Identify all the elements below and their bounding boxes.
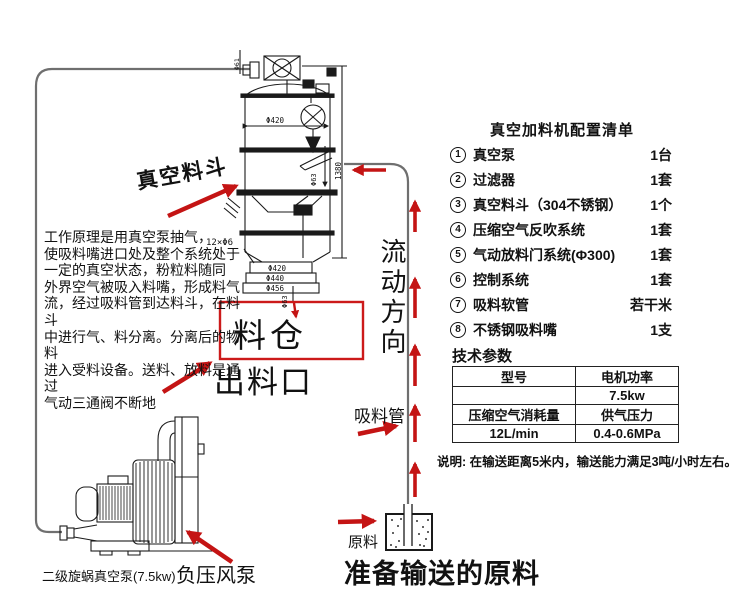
item-number-badge: 7 [450, 297, 466, 313]
item-label: 气动放料门系统(Φ300) [473, 245, 650, 265]
config-list-item: 5 气动放料门系统(Φ300) 1套 [450, 242, 672, 267]
arrow-to-suction-pipe [358, 426, 396, 434]
principle-line: 流，经过吸料管到达料斗，在料斗 [44, 295, 240, 328]
item-number-badge: 3 [450, 197, 466, 213]
config-list-title: 真空加料机配置清单 [452, 119, 672, 140]
config-list-item: 7 吸料软管 若干米 [450, 292, 672, 317]
dim-flange-456: Φ456 [266, 284, 284, 293]
config-list-item: 6 控制系统 1套 [450, 267, 672, 292]
dim-flange-420: Φ420 [268, 264, 286, 273]
principle-line: 中进行气、料分离。分离后的物料 [44, 329, 240, 362]
table-row: 12L/min 0.4-0.6MPa [453, 425, 679, 443]
item-quantity: 1套 [650, 270, 672, 290]
item-quantity: 若干米 [630, 295, 672, 315]
item-label: 真空料斗（304不锈钢） [473, 195, 650, 215]
arrow-to-pump [188, 532, 232, 562]
item-number-badge: 2 [450, 172, 466, 188]
dim-body-diameter: Φ420 [266, 116, 284, 125]
outlet-label: 出料口 [214, 357, 313, 402]
item-label: 吸料软管 [473, 295, 630, 315]
dim-spout-diameter: Φ63 [281, 295, 289, 308]
item-quantity: 1台 [650, 145, 672, 165]
item-number-badge: 1 [450, 147, 466, 163]
principle-line: 一定的真空状态，粉粒料随同 [44, 262, 240, 279]
principle-line: 进入受料设备。送料、放料是通过 [44, 362, 240, 395]
config-list-item: 4 压缩空气反吹系统 1套 [450, 217, 672, 242]
principle-line: 使吸料嘴进口处及整个系统处于 [44, 246, 240, 263]
table-cell: 电机功率 [576, 367, 679, 387]
config-list-item: 8 不锈钢吸料嘴 1支 [450, 317, 672, 342]
negative-pressure-pump-label: 负压风泵 [176, 559, 256, 588]
item-quantity: 1支 [650, 320, 672, 340]
table-cell: 供气压力 [576, 405, 679, 425]
dim-top-port: Φ61 [233, 58, 241, 70]
tech-params-table: 型号 电机功率 7.5kw 压缩空气消耗量 供气压力 12L/min 0.4-0… [452, 366, 679, 443]
table-cell: 0.4-0.6MPa [576, 425, 679, 443]
config-list-item: 2 过滤器 1套 [450, 167, 672, 192]
item-quantity: 1个 [650, 195, 672, 215]
item-quantity: 1套 [650, 220, 672, 240]
item-number-badge: 4 [450, 222, 466, 238]
table-row: 7.5kw [453, 387, 679, 405]
working-principle-text: 工作原理是用真空泵抽气， 使吸料嘴进口处及整个系统处于 一定的真空状态，粉粒料随… [44, 229, 240, 412]
table-cell: 7.5kw [576, 387, 679, 405]
dim-total-height: 1380 [334, 162, 343, 180]
diagram-canvas: 真空料斗 工作原理是用真空泵抽气， 使吸料嘴进口处及整个系统处于 一定的真空状态… [0, 0, 746, 594]
dim-inlet-diameter: Φ63 [310, 173, 318, 186]
item-label: 控制系统 [473, 270, 650, 290]
dim-bolt-circle: 12×Φ6 [206, 238, 233, 248]
config-list-item: 3 真空料斗（304不锈钢） 1个 [450, 192, 672, 217]
item-quantity: 1套 [650, 245, 672, 265]
config-list-item: 1 真空泵 1台 [450, 142, 672, 167]
ready-material-label: 准备输送的原料 [344, 552, 540, 591]
pump-model-label: 二级旋蜗真空泵(7.5kw) [42, 566, 176, 585]
item-label: 不锈钢吸料嘴 [473, 320, 650, 340]
table-cell [453, 387, 576, 405]
table-cell: 型号 [453, 367, 576, 387]
note-text: 说明: 在输送距离5米内，输送能力满足3吨/小时左右。 [437, 451, 739, 470]
arrow-to-hopper [168, 186, 236, 216]
suction-pipe-label: 吸料管 [354, 402, 405, 427]
material-bin-label: 料仓 [233, 309, 307, 357]
table-cell: 压缩空气消耗量 [453, 405, 576, 425]
config-list: 1 真空泵 1台 2 过滤器 1套 3 真空料斗（304不锈钢） 1个 4 压缩… [450, 142, 672, 342]
material-container-drawing [386, 504, 432, 550]
item-label: 过滤器 [473, 170, 650, 190]
raw-material-label: 原料 [348, 531, 378, 552]
item-quantity: 1套 [650, 170, 672, 190]
table-row: 型号 电机功率 [453, 367, 679, 387]
arrow-to-raw-material [338, 521, 374, 522]
item-number-badge: 8 [450, 322, 466, 338]
item-number-badge: 5 [450, 247, 466, 263]
principle-line: 气动三通阀不断地 [44, 395, 240, 412]
dim-flange-440: Φ440 [266, 274, 284, 283]
item-label: 真空泵 [473, 145, 650, 165]
item-number-badge: 6 [450, 272, 466, 288]
tech-params-title: 技术参数 [452, 345, 512, 366]
item-label: 压缩空气反吹系统 [473, 220, 650, 240]
principle-line: 外界空气被吸入料嘴，形成料气 [44, 279, 240, 296]
table-row: 压缩空气消耗量 供气压力 [453, 405, 679, 425]
table-cell: 12L/min [453, 425, 576, 443]
flow-direction-label: 流动方向 [374, 238, 411, 358]
